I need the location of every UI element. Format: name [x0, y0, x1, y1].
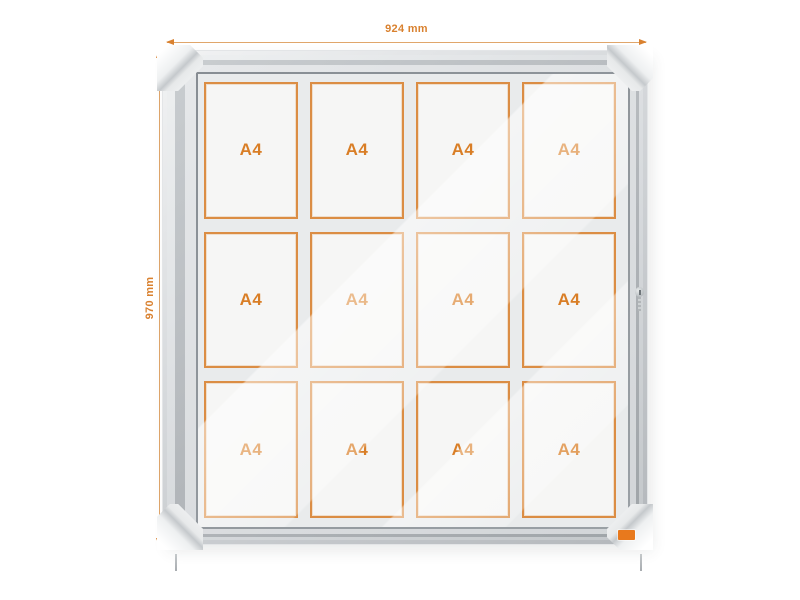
a4-sheet: A4	[310, 381, 404, 518]
dimension-height-line	[159, 51, 160, 545]
a4-sheet: A4	[522, 232, 616, 369]
dimension-height-label: 970 mm	[144, 275, 156, 321]
a4-sheet: A4	[522, 82, 616, 219]
a4-sheet: A4	[416, 232, 510, 369]
a4-sheet: A4	[310, 82, 404, 219]
a4-sheet: A4	[310, 232, 404, 369]
a4-sheet-grid: A4 A4 A4 A4 A4 A4 A4 A4 A4 A4 A4 A4	[198, 74, 628, 527]
product-spec-image: 924 mm 970 mm A4 A4 A4 A4 A4 A4 A4 A4	[0, 0, 800, 600]
a4-sheet: A4	[204, 381, 298, 518]
glass-door: A4 A4 A4 A4 A4 A4 A4 A4 A4 A4 A4 A4	[198, 74, 628, 527]
wall-pin-right	[640, 554, 642, 571]
brand-logo-chip	[618, 530, 635, 540]
dimension-width-label: 924 mm	[167, 23, 646, 35]
noticeboard-frame: A4 A4 A4 A4 A4 A4 A4 A4 A4 A4 A4 A4	[162, 50, 648, 545]
wall-pin-left	[175, 554, 177, 571]
a4-sheet: A4	[204, 82, 298, 219]
lock-stem	[638, 297, 641, 311]
keyhole-icon	[639, 290, 641, 295]
glass-door-edge: A4 A4 A4 A4 A4 A4 A4 A4 A4 A4 A4 A4	[196, 72, 630, 529]
dimension-width-line	[167, 42, 646, 43]
a4-sheet: A4	[416, 381, 510, 518]
a4-sheet: A4	[416, 82, 510, 219]
arrow-right-icon	[639, 39, 647, 45]
lock-icon	[635, 287, 645, 319]
a4-sheet: A4	[522, 381, 616, 518]
a4-sheet: A4	[204, 232, 298, 369]
arrow-left-icon	[166, 39, 174, 45]
